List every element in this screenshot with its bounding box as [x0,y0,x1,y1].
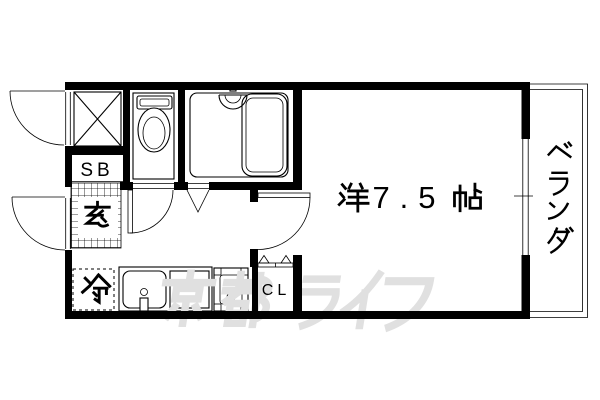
bathtub-icon [242,94,287,176]
shoe-box-label: SB [80,160,113,181]
wall-hall-b [174,182,188,190]
wall-toilet-bath [178,90,185,182]
closet-label: CL [262,282,290,299]
wall-closet-left [252,255,258,312]
floor-plan-svg: 7.5 SB CL [0,0,600,400]
veranda-label [549,143,573,253]
wall-meterbox-sb [72,146,123,155]
entrance-door-swing-bottom [12,197,70,250]
main-room-size-text: 7.5 [372,180,445,215]
refrigerator-label [83,275,110,302]
main-room-label: 7.5 [339,180,480,215]
wall-closet-right [293,255,302,312]
main-room-door-swing [258,193,310,250]
wall-bottom [65,311,530,319]
wall-bath-mainroom [293,82,302,190]
veranda-outline [530,84,588,318]
floor-plan-page: 7.5 SB CL [0,0,600,400]
wall-left-mid [65,146,72,187]
kitchen-sink-icon [123,271,166,311]
meter-box-cross-icon [74,92,121,146]
wall-left-lower [65,250,72,319]
door-thresholds [133,184,209,189]
bath-door-fold [187,190,209,212]
toilet-icon [137,96,172,152]
toilet-door-swing [128,190,173,233]
wall-door-stub-top [250,182,258,202]
entrance-door-swing-top [10,91,70,145]
wall-window-top [522,90,531,139]
wall-meterbox-toilet [123,90,130,182]
closet-folding-door-icon [258,256,293,268]
toilet-room [133,93,174,179]
window-sliding [514,139,533,255]
bathroom [190,83,288,177]
wall-hall-a [120,182,133,190]
wall-window-bottom [522,255,531,311]
